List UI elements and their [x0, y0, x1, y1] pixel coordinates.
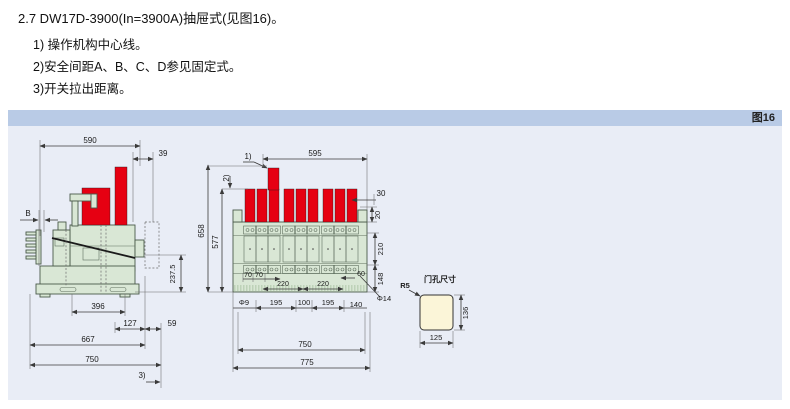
dim-140-label: 140: [350, 300, 363, 309]
door-hole-drawing: 门孔尺寸 R5 136 125: [400, 274, 470, 348]
pulled-out-position-outline: [145, 222, 159, 268]
figure16-caption: 图16: [752, 112, 775, 124]
note-1-label: 1): [244, 152, 251, 161]
figure16-header-bar: 图16: [8, 110, 782, 126]
dim-20-label: 20: [373, 211, 382, 219]
dim-30-label: 30: [377, 189, 386, 198]
door-cutout-square: [420, 295, 453, 330]
tall-busbar-red: [268, 168, 279, 190]
dim-r5-label: R5: [400, 281, 410, 290]
dim-396-label: 396: [91, 302, 105, 311]
dim-136-label: 136: [461, 307, 470, 320]
dim-100-label: 100: [298, 298, 311, 307]
section-heading: 2.7 DW17D-3900(In=3900A)抽屉式(见图16)。: [18, 10, 790, 28]
dim-590-label: 590: [83, 136, 97, 145]
dim-195b-label: 195: [322, 298, 335, 307]
dim-b-label: B: [25, 209, 30, 218]
note-3: 3)开关拉出距离。: [33, 78, 790, 100]
rear-terminal-side: [135, 240, 144, 257]
figure16-drawing: 590 39 B 237.5: [8, 126, 782, 400]
front-view-drawing: 1) 2) 595 658 577 30: [197, 149, 391, 372]
cradle-base: [36, 284, 139, 294]
note-1: 1) 操作机构中心线。: [33, 34, 790, 56]
dim-125-label: 125: [430, 333, 443, 342]
pullout-note-label: 3): [138, 371, 145, 380]
dim-595-label: 595: [308, 149, 322, 158]
dim-750-side-label: 750: [85, 355, 99, 364]
left-mounting-ear: [233, 210, 242, 222]
note-2: 2)安全间距A、B、C、D参见固定式。: [33, 56, 790, 78]
right-mounting-ear: [358, 210, 367, 222]
dim-195a-label: 195: [270, 298, 283, 307]
door-hole-title: 门孔尺寸: [424, 274, 456, 284]
dim-phi14-label: Φ14: [377, 294, 391, 303]
rear-busbar-red: [115, 167, 127, 225]
side-view-drawing: 590 39 B 237.5: [20, 136, 186, 388]
dim-220b-label: 220: [317, 281, 329, 288]
busbars-red: [245, 168, 357, 222]
dim-667-label: 667: [81, 335, 95, 344]
dim-39-label: 39: [159, 149, 168, 158]
dim-750-front-label: 750: [298, 340, 312, 349]
dim-577-label: 577: [211, 235, 220, 249]
figure16-body: 590 39 B 237.5: [8, 126, 782, 400]
dim-658-label: 658: [197, 224, 206, 238]
dim-70b-label: 70: [255, 272, 263, 279]
front-panel-side: [53, 230, 70, 266]
drawout-cradle: [40, 266, 135, 286]
dim-775-label: 775: [300, 358, 314, 367]
dim-237-5-label: 237.5: [168, 265, 177, 284]
dim-148-label: 148: [376, 273, 385, 286]
dim-210-label: 210: [376, 243, 385, 256]
document-text-block: 2.7 DW17D-3900(In=3900A)抽屉式(见图16)。 1) 操作…: [0, 0, 790, 100]
breaker-body-side: [70, 225, 135, 271]
dim-59-label: 59: [168, 319, 177, 328]
dim-220a-label: 220: [277, 281, 289, 288]
dim-phi9-label: Φ9: [239, 298, 249, 307]
figure16-panel: 图16: [8, 110, 782, 400]
dim-127-label: 127: [123, 319, 137, 328]
dim-70a-label: 70: [244, 272, 252, 279]
